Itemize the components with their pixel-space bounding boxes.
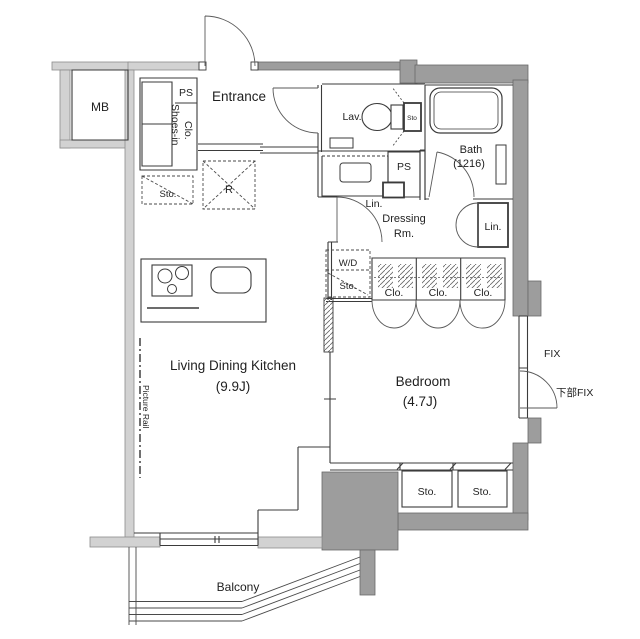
floor-plan-page: MB PS Entrance Shoes-in Clo. Sto. R Lav.… [0,0,640,639]
label-ps-top: PS [179,87,193,99]
label-picture-rail: Picture Rail [141,385,151,429]
wall-mb-bottom [60,140,130,148]
wall-right-lower [513,443,528,520]
wall-mb-left [60,70,70,148]
wall-right-notch-lower [528,418,541,443]
label-dressing-2: Rm. [394,228,414,240]
vanity-sink [340,163,371,182]
wall-top-right [415,65,528,83]
label-clo-2: Clo. [429,287,448,299]
balcony-window-frame [160,533,258,546]
label-shoes-in-1: Shoes-in [169,104,181,146]
label-clo-1: Clo. [385,287,404,299]
balcony-rail-diagonal [242,557,360,621]
wall-top-center [256,62,403,70]
label-ps-mid: PS [397,161,411,173]
hanger-hatch [443,264,458,288]
stove-burner-3 [168,285,177,294]
label-refrigerator: R [225,184,233,196]
closet-door-2 [416,300,460,328]
label-bath-1: Bath [460,144,483,156]
wall-mb-top [52,62,130,70]
label-bedroom-2: (4.7J) [403,394,438,409]
balcony-rail-bottom [129,602,242,622]
label-shoes-in-2: Clo. [182,121,194,140]
ps-bath-divider-wall [420,150,425,200]
hanger-hatch [466,264,481,288]
wall-bottom-center-stub [258,537,322,548]
wall-bottom-left-stub [90,537,160,547]
wall-right-upper [513,80,528,316]
hanger-hatch [422,264,437,288]
label-lin-mid: Lin. [366,198,383,210]
hanger-hatch [487,264,502,288]
closet-door-1 [372,300,416,328]
lavatory-door-swing [273,88,318,133]
entrance-step-lines [198,144,318,153]
dimension-ticks [397,463,511,470]
label-lower-fix: 下部FIX [556,386,593,399]
pillar-center [322,472,398,550]
label-balcony: Balcony [217,580,260,594]
stove-burner-2 [176,267,189,280]
label-kitchen-sto: Sto. [160,189,177,200]
label-ldk-2: (9.9J) [216,379,251,394]
hanger-hatch [398,264,413,288]
toilet-tank [391,105,403,129]
bath-outline [425,85,513,200]
kitchen-sink [211,267,251,293]
bathtub-inner [434,92,498,129]
vanity-outline [322,156,388,196]
hanger-hatch [378,264,393,288]
wall-top-step [400,60,417,83]
wall-top-left [128,62,205,70]
balcony-rail-left [129,547,136,625]
label-clo-3: Clo. [474,287,493,299]
lower-fix-door-swing [520,371,557,408]
label-bedroom-sto-1: Sto. [418,486,437,498]
bedroom-south-wall [330,447,513,470]
label-wd: W/D [339,258,358,269]
label-mb: MB [91,100,109,114]
label-entrance: Entrance [212,89,266,104]
closet-door-3 [460,300,505,328]
wall-bottom-right [398,513,528,530]
wall-right-notch-upper [528,281,541,316]
dressing-west-wall [318,152,338,300]
label-bath-2: (1216) [453,158,485,170]
lav-shelf [330,138,353,148]
toilet-bowl [362,104,392,131]
fix-window-frame [519,316,528,418]
label-bedroom-1: Bedroom [396,374,451,389]
label-wd-sto: Sto. [340,281,357,292]
label-lav: Lav. [342,111,361,123]
hatched-wall-segment [324,298,333,352]
closet-hanger-symbols [374,264,503,288]
pillar-stub [360,550,375,595]
wall-left [125,70,134,545]
bath-counter [496,145,506,184]
label-dressing-1: Dressing [382,213,425,225]
label-lav-sto: Sto [407,115,417,122]
label-bedroom-sto-2: Sto. [473,486,492,498]
floor-plan-drawing: MB PS Entrance Shoes-in Clo. Sto. R Lav.… [0,0,640,639]
label-fix: FIX [544,348,560,360]
linen-double-door [456,203,478,247]
bathtub [430,88,502,133]
stove [152,265,192,296]
stove-burner-1 [158,269,172,283]
linen-box-mid [383,183,404,198]
label-ldk-1: Living Dining Kitchen [170,358,296,373]
entrance-door-swing [205,16,255,66]
label-lin-right: Lin. [485,221,502,233]
